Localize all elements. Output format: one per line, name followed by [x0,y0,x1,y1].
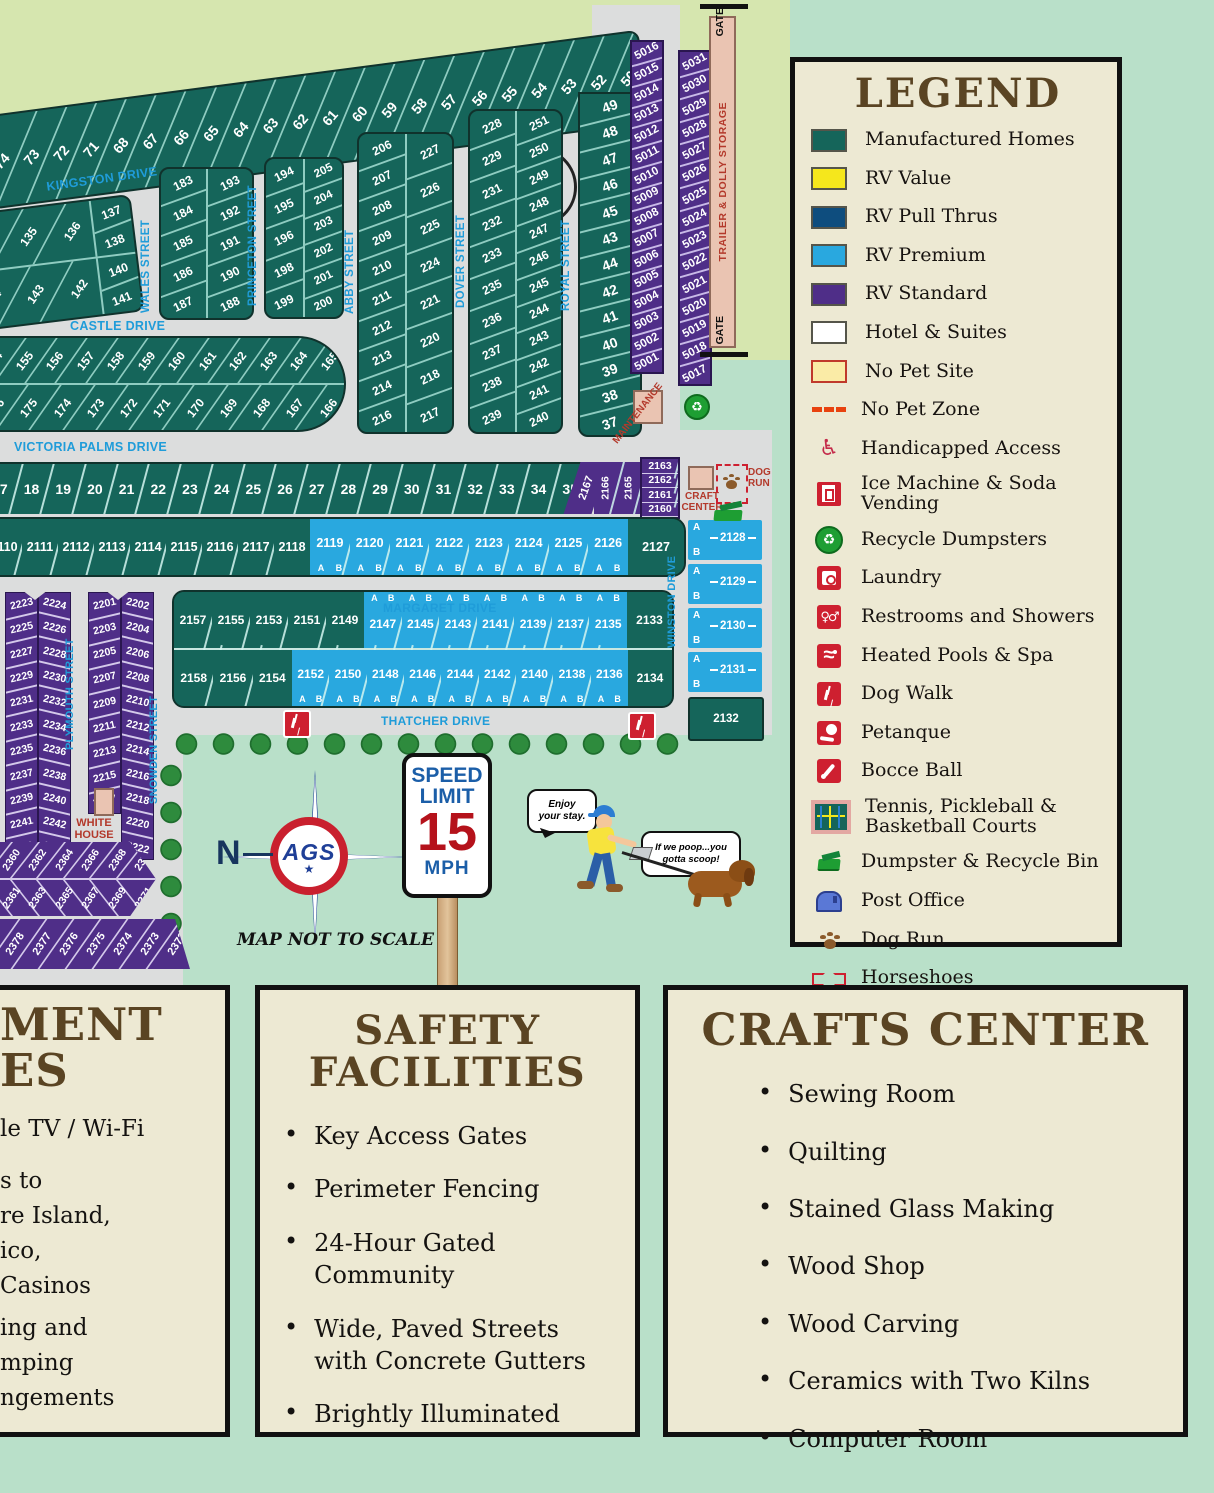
lot-2132: 2132 [688,697,764,741]
legend-icon [811,927,847,953]
legend-icon [811,436,847,462]
legend-icon-glyph [817,566,841,590]
legend-item: Heated Pools & Spa [811,643,1105,669]
street-label-castle: CASTLE DRIVE [70,319,165,333]
legend-label: Handicapped Access [861,439,1061,459]
bullet-dot: • [758,1193,772,1225]
legend-icon [811,888,847,914]
bullet-dot: • [758,1136,772,1168]
cartoon-man-shoe [606,884,623,892]
legend-icon [811,849,847,875]
legend-label: No Pet Zone [861,400,980,420]
sign-post [437,895,458,989]
legend-icon-glyph [819,436,839,461]
lot-cell: 2162 [642,474,678,489]
legend-icon [811,604,847,630]
lot-cell: 2153 [250,592,288,648]
lot-cell: 2114 [130,519,166,575]
legend-icon-glyph [817,482,841,506]
column-peak [105,590,131,600]
lot-cell-premium: 2146 AB [404,650,441,706]
title-fragment: MENT [0,1002,163,1048]
dog-run-label: DOG RUN [748,468,784,489]
legend-icon-glyph [811,360,847,383]
legend-label: RV Standard [865,284,987,304]
street-label-royal: ROYAL STREET [560,196,572,311]
speed-limit-sign: SPEED LIMIT 15 MPH [402,753,492,898]
wales-princeton-block: 183184185186187 193192191190188 [159,167,254,320]
row-2110-strip: 211021112112211321142115211621172118 211… [0,517,686,577]
lot-cell: 18 [16,464,48,514]
lot-cell: 2116 [202,519,238,575]
bullet-dot: • [284,1313,298,1378]
street-label-abby: ABBY STREET [344,214,356,314]
bullet-text: Quilting [788,1136,887,1168]
lot-cell: 2113 [94,519,130,575]
bullet-text: Wood Shop [788,1250,925,1282]
trailer-dolly-storage: TRAILER & DOLLY STORAGE [709,16,736,348]
safety-title: SAFETY FACILITIES [284,1010,611,1094]
bottom-purple-row: 23792378237723762375237423732372 [0,919,190,969]
lot-cell: 2165 [617,462,640,514]
safety-panel: SAFETY FACILITIES •Key Access Gates•Peri… [255,985,640,1437]
dog-run-area [716,464,748,504]
lot-cell-premium-ab: AB2129 [688,564,762,604]
legend-icon [811,481,847,507]
column-peak [22,590,48,600]
lot-cell-premium: 2119 AB [310,519,350,575]
legend-item: No Pet Site [811,359,1105,385]
street-label-princeton: PRINCETON STREET [247,196,259,306]
compass-ring: AGS ★ [270,817,348,895]
kingston-block: 134135136 137138 144143142 140141 [0,194,145,332]
bullet-dot: • [284,1120,298,1152]
lot-cell: 2166 [594,462,617,514]
lot-cell-premium-ab: AB2128 [688,520,762,560]
legend-icon [811,527,847,553]
legend-label: Dog Walk [861,684,953,704]
legend-icon-glyph [816,851,842,873]
amenities-title-fragments: MENTES [0,1002,163,1094]
legend-icon-glyph [811,244,847,267]
legend-item: No Pet Zone [811,397,1105,423]
legend-items: Manufactured Homes RV Value RV Pull Thru… [811,127,1105,991]
line-fragment: ing and [0,1315,144,1341]
legend-label: No Pet Site [865,362,974,382]
legend-item: Laundry [811,565,1105,591]
victoria-row-strip: 17181920212223242526272829303132333435 [0,462,586,514]
legend-icon-glyph [811,283,847,306]
lot-cell-premium: AB 2135 [589,592,627,648]
legend-item: RV Pull Thrus [811,204,1105,230]
street-label-margaret: MARGARET DRIVE [383,601,497,615]
lot-cell-premium: 2125 AB [549,519,589,575]
legend-icon-glyph [817,721,841,745]
bullet-text: Stained Glass Making [788,1193,1054,1225]
bullet-text: Perimeter Fencing [314,1173,539,1205]
lot-cell-premium: 2142 AB [479,650,516,706]
bullet-text: Computer Room [788,1423,987,1455]
legend-icon-glyph [811,800,851,834]
legend-label: Dog Run [861,930,945,950]
street-label-dover: DOVER STREET [455,203,467,308]
lot-cell-premium: 2120 AB [350,519,390,575]
legend-icon-glyph [816,891,842,912]
gate-bar-bottom [700,352,748,357]
legend-icon-glyph [811,206,847,229]
bullet-dot: • [758,1423,772,1455]
dumpster-icon [714,503,744,521]
recycle-dumpster-icon [684,394,710,420]
legend-icon [811,243,851,269]
legend-title: LEGEND [811,70,1105,117]
lot-cell: 19 [47,464,79,514]
street-label-thatcher: THATCHER DRIVE [381,714,490,728]
legend-item: Restrooms and Showers [811,604,1105,630]
legend-item: Post Office [811,888,1105,914]
bullet-row: •Sewing Room [758,1078,1153,1110]
lot-cell: 2117 [238,519,274,575]
legend-icon [811,127,851,153]
legend-item: RV Premium [811,243,1105,269]
lot-cell-premium: AB 2137 [552,592,590,648]
cartoon-man-shoe [577,881,594,889]
legend-icon [811,359,851,385]
legend-label: Petanque [861,723,951,743]
lot-cell: 2157 [174,592,212,648]
bullet-dot: • [758,1078,772,1110]
lot-cell: 28 [333,464,365,514]
bullet-dot: • [758,1308,772,1340]
line-fragment: mping [0,1350,144,1376]
lot-cell: 2156 [213,650,252,706]
legend-panel: LEGEND Manufactured Homes RV Value RV Pu… [790,57,1122,947]
lot-cell: 22 [142,464,174,514]
legend-icon [811,804,851,830]
chevron-band: 2358236023622364236623682370 23592361236… [0,842,156,916]
lot-cell: 27 [301,464,333,514]
street-label-snowden: SNOWDEN STREET [148,692,160,804]
lot-cell-premium-ab: AB2130 [688,608,762,648]
lot-cell: 21 [111,464,143,514]
street-label-victoria: VICTORIA PALMS DRIVE [14,440,167,454]
lot-cell: 2112 [58,519,94,575]
purple-vertical-trio: 216621652164 [594,462,640,514]
bullet-text: Ceramics with Two Kilns [788,1365,1090,1397]
bullet-text: Brightly Illuminated [314,1398,560,1430]
legend-label: Hotel & Suites [865,323,1007,343]
lot-cell-premium: 2150 AB [329,650,366,706]
legend-label: Heated Pools & Spa [861,646,1053,666]
abby-dover-block: 206207208209210211212213214216 227226225… [357,132,454,434]
bullet-row: •Stained Glass Making [758,1193,1153,1225]
legend-item: Dumpster & Recycle Bin [811,849,1105,875]
legend-item: Manufactured Homes [811,127,1105,153]
legend-item: Dog Run [811,927,1105,953]
snowden-west-column: 220122032205220722092211221322152217 [88,592,121,814]
lot-cell-premium: 2124 AB [509,519,549,575]
gate-bottom-label: GATE [714,316,726,344]
crafts-bullets: •Sewing Room•Quilting•Stained Glass Maki… [698,1078,1153,1455]
legend-icon-glyph [817,682,841,706]
lot-cell: 30 [396,464,428,514]
legend-label: RV Premium [865,246,986,266]
legend-item: Petanque [811,720,1105,746]
bullet-text: Wood Carving [788,1308,959,1340]
legend-item: Handicapped Access [811,436,1105,462]
lot-cell: 31 [428,464,460,514]
lot-number: 2167 [576,474,596,501]
bullet-dot: • [284,1227,298,1292]
legend-icon-glyph [817,605,841,629]
line-fragment: s to [0,1168,144,1194]
bullet-row: •Perimeter Fencing [284,1173,611,1205]
legend-label: Tennis, Pickleball & Basketball Courts [865,797,1105,837]
legend-icon-glyph [812,407,846,417]
lot-cell-premium: 2136 AB [591,650,628,706]
bullet-row: •Wood Carving [758,1308,1153,1340]
legend-icon-glyph [811,167,847,190]
legend-icon [811,281,851,307]
legend-icon-glyph [815,526,843,554]
line-fragment: re Island, [0,1203,144,1229]
lot-cell-premium: 2152 AB [292,650,329,706]
lot-cell: 2118 [274,519,310,575]
legend-icon [811,565,847,591]
legend-icon [811,320,851,346]
line-fragment: Casinos [0,1273,144,1299]
lot-column-5001-5016: 5016501550145013501250115010500950085007… [630,40,664,374]
legend-item: Bocce Ball [811,758,1105,784]
lot-cell: 17 [0,464,16,514]
bullet-row: •Wood Shop [758,1250,1153,1282]
legend-item: Ice Machine & Soda Vending [811,474,1105,514]
gate-top-label: GATE [714,8,726,36]
dog-walk-icon [283,710,311,738]
princeton-abby-block: 194195196198199 205204203202201200 [264,157,344,319]
legend-label: Recycle Dumpsters [861,530,1047,550]
lot-cell: 2111 [22,519,58,575]
lot-cell: 2154 [253,650,292,706]
white-house-building [94,788,114,816]
lot-cell-premium: 2121 AB [390,519,430,575]
legend-item: Dog Walk [811,681,1105,707]
lot-cell: 2155 [212,592,250,648]
speed-word: SPEED [406,765,488,786]
cartoon-dog-ear [744,868,754,886]
bullet-row: •Computer Room [758,1423,1153,1455]
bullet-row: •Ceramics with Two Kilns [758,1365,1153,1397]
lot-cell-premium: 2148 AB [367,650,404,706]
lot-cell-premium: 2140 AB [516,650,553,706]
lot-cell: 33 [491,464,523,514]
bullet-text: Wide, Paved Streets with Concrete Gutter… [314,1313,586,1378]
lot-cell: 2163 [642,459,678,474]
legend-icon [811,204,851,230]
lot-cell: 2110 [0,519,22,575]
legend-label: Manufactured Homes [865,130,1075,150]
legend-icon [811,166,851,192]
lot-cell: 25 [238,464,270,514]
lot-cell-premium: 2123 AB [469,519,509,575]
lot-cell: 32 [459,464,491,514]
line-fragment: le TV / Wi-Fi [0,1116,144,1142]
lot-cell-premium: 2126 AB [588,519,628,575]
lot-column-5017-5031: 5031503050295028502750265025502450235022… [678,50,712,386]
bullet-dot: • [758,1365,772,1397]
lot-cell: 2151 [288,592,326,648]
legend-label: RV Pull Thrus [865,207,998,227]
legend-label: Laundry [861,568,941,588]
dog-walk-icon [628,712,656,740]
lot-cell: 26 [269,464,301,514]
bullet-dot: • [284,1398,298,1430]
lot-cell: 34 [523,464,555,514]
legend-icon-glyph [811,129,847,152]
lot-cell: 20 [79,464,111,514]
compass-dash [243,853,273,856]
lot-cell-premium: 2122 AB [429,519,469,575]
bullet-row: •Wide, Paved Streets with Concrete Gutte… [284,1313,611,1378]
bullet-dot: • [284,1173,298,1205]
trailer-storage-label: TRAILER & DOLLY STORAGE [717,102,729,262]
lot-cell-premium-ab: AB2131 [688,652,762,692]
bullet-dot: • [758,1250,772,1282]
legend-item: Recycle Dumpsters [811,527,1105,553]
lot-2134: 2134 [628,650,672,706]
compass-star-glyph: ★ [304,866,315,873]
legend-item: RV Standard [811,281,1105,307]
amenities-line-fragments: le TV / Wi-Fis tore Island,ico,Casinosin… [0,1116,144,1420]
lot-cell: 23 [174,464,206,514]
street-label-winston: WINSTON DRIVE [666,570,678,648]
line-fragment: ico, [0,1238,144,1264]
crafts-title: CRAFTS CENTER [698,1008,1153,1054]
legend-label: Bocce Ball [861,761,962,781]
speed-value: 15 [406,807,488,858]
safety-bullets: •Key Access Gates•Perimeter Fencing•24-H… [284,1120,611,1431]
legend-icon-glyph [817,759,841,783]
lot-cell: 2115 [166,519,202,575]
craft-center-building [688,466,714,490]
lot-cell-premium: AB 2139 [514,592,552,648]
bullet-row: •Brightly Illuminated [284,1398,611,1430]
legend-label: Restrooms and Showers [861,607,1095,627]
resort-map-canvas: 7473727168676665646362616059585756555453… [0,0,1214,1493]
legend-icon [811,720,847,746]
white-house-label: WHITE HOUSE [66,818,122,841]
castle-strip: 154155156157158159160161162163164165 176… [0,336,346,432]
lot-cell: 2158 [174,650,213,706]
legend-icon-glyph [817,644,841,668]
legend-item: Tennis, Pickleball & Basketball Courts [811,797,1105,837]
bullet-row: •Key Access Gates [284,1120,611,1152]
lot-cell: 24 [206,464,238,514]
lot-cell: 29 [364,464,396,514]
legend-icon [811,643,847,669]
lot-cell: 2149 [326,592,364,648]
plymouth-west-column: 2223222522272229223122332235223722392241… [5,592,38,860]
lot-cell-premium: 2144 AB [441,650,478,706]
speech-bubble-man: Enjoy your stay. [527,789,597,833]
bullet-row: •24-Hour Gated Community [284,1227,611,1292]
legend-icon-glyph [812,971,846,985]
legend-label: Ice Machine & Soda Vending [861,474,1105,514]
legend-icon [811,397,847,423]
winston-column: AB2128 AB2129 AB2130 AB2131 [688,520,762,696]
bullet-row: •Quilting [758,1136,1153,1168]
bullet-text: 24-Hour Gated Community [314,1227,495,1292]
compass-north-label: N [216,834,241,873]
bullet-text: Key Access Gates [314,1120,527,1152]
street-label-plymouth: PLYMOUTH STREET [64,618,76,750]
map-not-to-scale-note: MAP NOT TO SCALE [237,930,434,950]
legend-item: Hotel & Suites [811,320,1105,346]
crafts-panel: CRAFTS CENTER •Sewing Room•Quilting•Stai… [663,985,1188,1437]
legend-icon [811,758,847,784]
bullet-text: Sewing Room [788,1078,955,1110]
dover-royal-block: 228229231232233235236237238239 251250249… [468,109,563,434]
legend-icon-glyph [811,321,847,344]
legend-icon [811,681,847,707]
legend-label: Dumpster & Recycle Bin [861,852,1099,872]
legend-label: RV Value [865,169,951,189]
street-label-wales: WALES STREET [140,208,152,313]
line-fragment: ngements [0,1385,144,1411]
lot-cell-premium: 2138 AB [553,650,590,706]
legend-label: Post Office [861,891,965,911]
title-fragment: ES [0,1048,163,1094]
legend-item: RV Value [811,166,1105,192]
legend-icon-glyph [817,928,841,952]
tree-column [156,757,186,942]
